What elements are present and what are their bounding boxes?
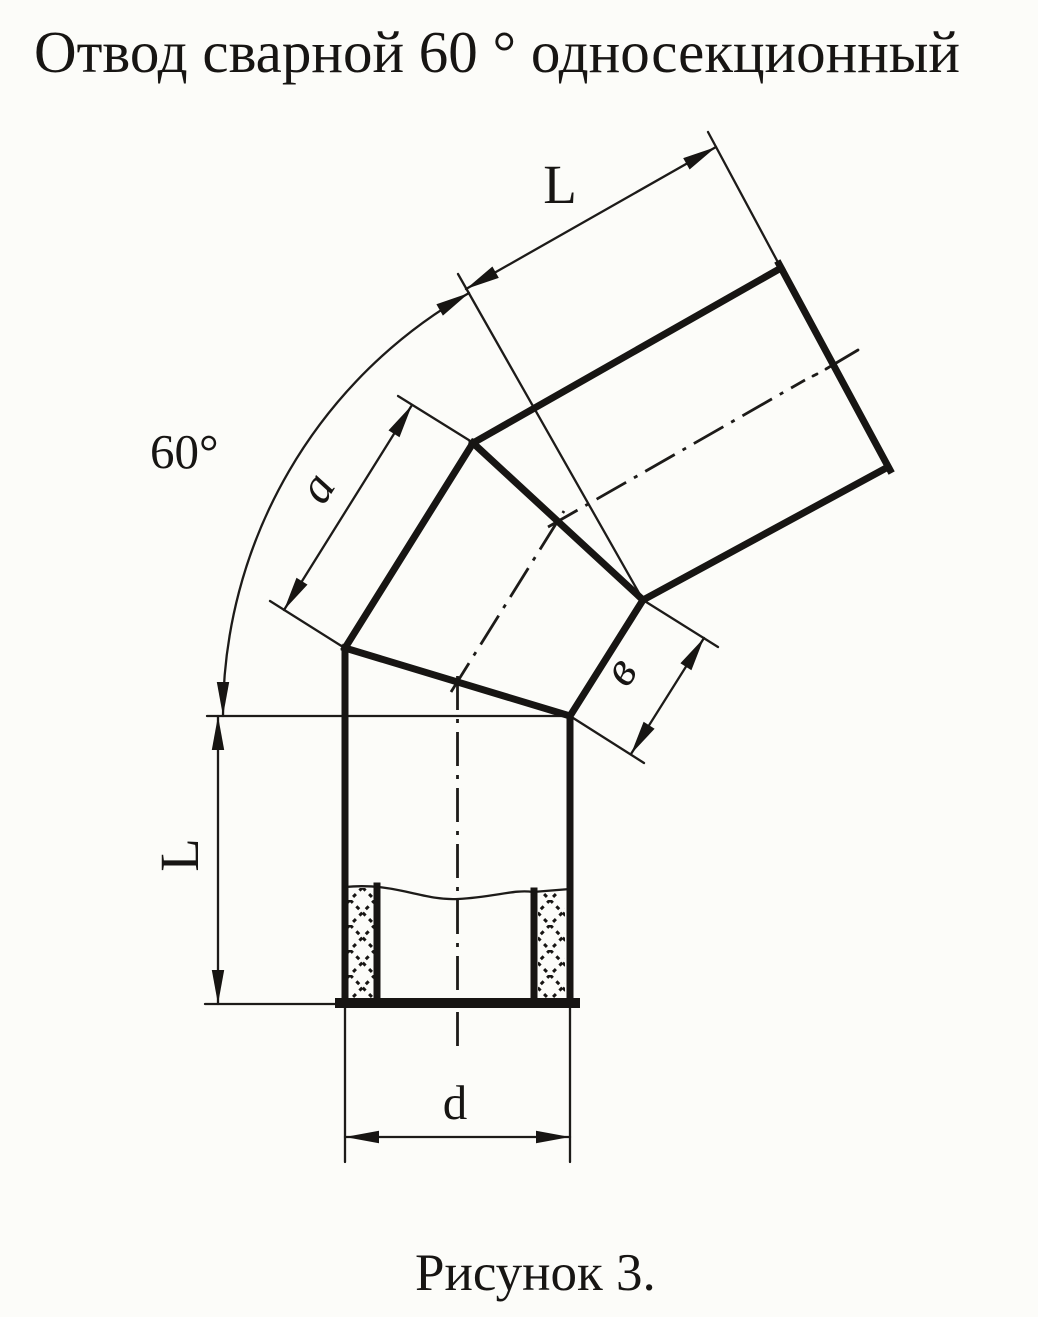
dim-label-L-vertical: L bbox=[149, 838, 210, 872]
centerline-top-pipe bbox=[548, 380, 805, 527]
arrow-d-left bbox=[345, 1131, 379, 1143]
extension-line-v-bottom bbox=[570, 716, 644, 763]
middle-section-outer-edge bbox=[345, 443, 473, 648]
pipe-outline bbox=[340, 264, 890, 1004]
extension-line-v-top bbox=[643, 600, 718, 647]
technical-drawing-canvas: Отвод сварной 60 ° односекционный bbox=[0, 0, 1038, 1317]
figure-caption: Рисунок 3. bbox=[415, 1244, 656, 1302]
dim-label-a: a bbox=[286, 462, 346, 512]
dim-line-a bbox=[284, 405, 412, 610]
arrow-v-top bbox=[680, 638, 704, 670]
top-pipe-upper-edge bbox=[473, 268, 781, 443]
hatch-right-wall bbox=[538, 892, 565, 1002]
arrow-arc-bottom bbox=[217, 682, 229, 716]
arrow-a-top bbox=[389, 405, 413, 437]
dimension-arrows bbox=[212, 147, 716, 1143]
extension-line-a-top bbox=[398, 396, 480, 447]
arrow-L-top-right bbox=[683, 147, 716, 170]
extension-line-L-top-right bbox=[708, 132, 781, 268]
weld-joint-line-2 bbox=[473, 443, 643, 600]
arrow-arc-top bbox=[436, 293, 469, 316]
centerline-middle-section bbox=[451, 511, 564, 692]
hatch-left-wall bbox=[348, 888, 374, 1002]
top-pipe-end-face bbox=[779, 264, 890, 470]
scanned-drawing-page: Отвод сварной 60 ° односекционный bbox=[0, 0, 1038, 1317]
dim-label-L-top: L bbox=[543, 154, 577, 215]
dim-line-L-top bbox=[466, 147, 716, 289]
arrow-v-bottom bbox=[631, 722, 655, 754]
extension-line-a-bottom bbox=[270, 601, 351, 652]
angle-label: 60° bbox=[150, 424, 219, 479]
dim-label-d: d bbox=[443, 1075, 468, 1130]
arrow-d-right bbox=[536, 1131, 570, 1143]
arrow-L-vertical-bottom bbox=[212, 970, 224, 1004]
arrow-L-top-left bbox=[466, 267, 499, 290]
centerline-dot bbox=[813, 374, 817, 376]
arrow-a-bottom bbox=[284, 578, 308, 610]
top-pipe-lower-edge bbox=[643, 467, 888, 600]
dim-label-v: в bbox=[591, 647, 648, 695]
page-title: Отвод сварной 60 ° односекционный bbox=[34, 19, 960, 85]
arrow-L-vertical-top bbox=[212, 716, 224, 750]
